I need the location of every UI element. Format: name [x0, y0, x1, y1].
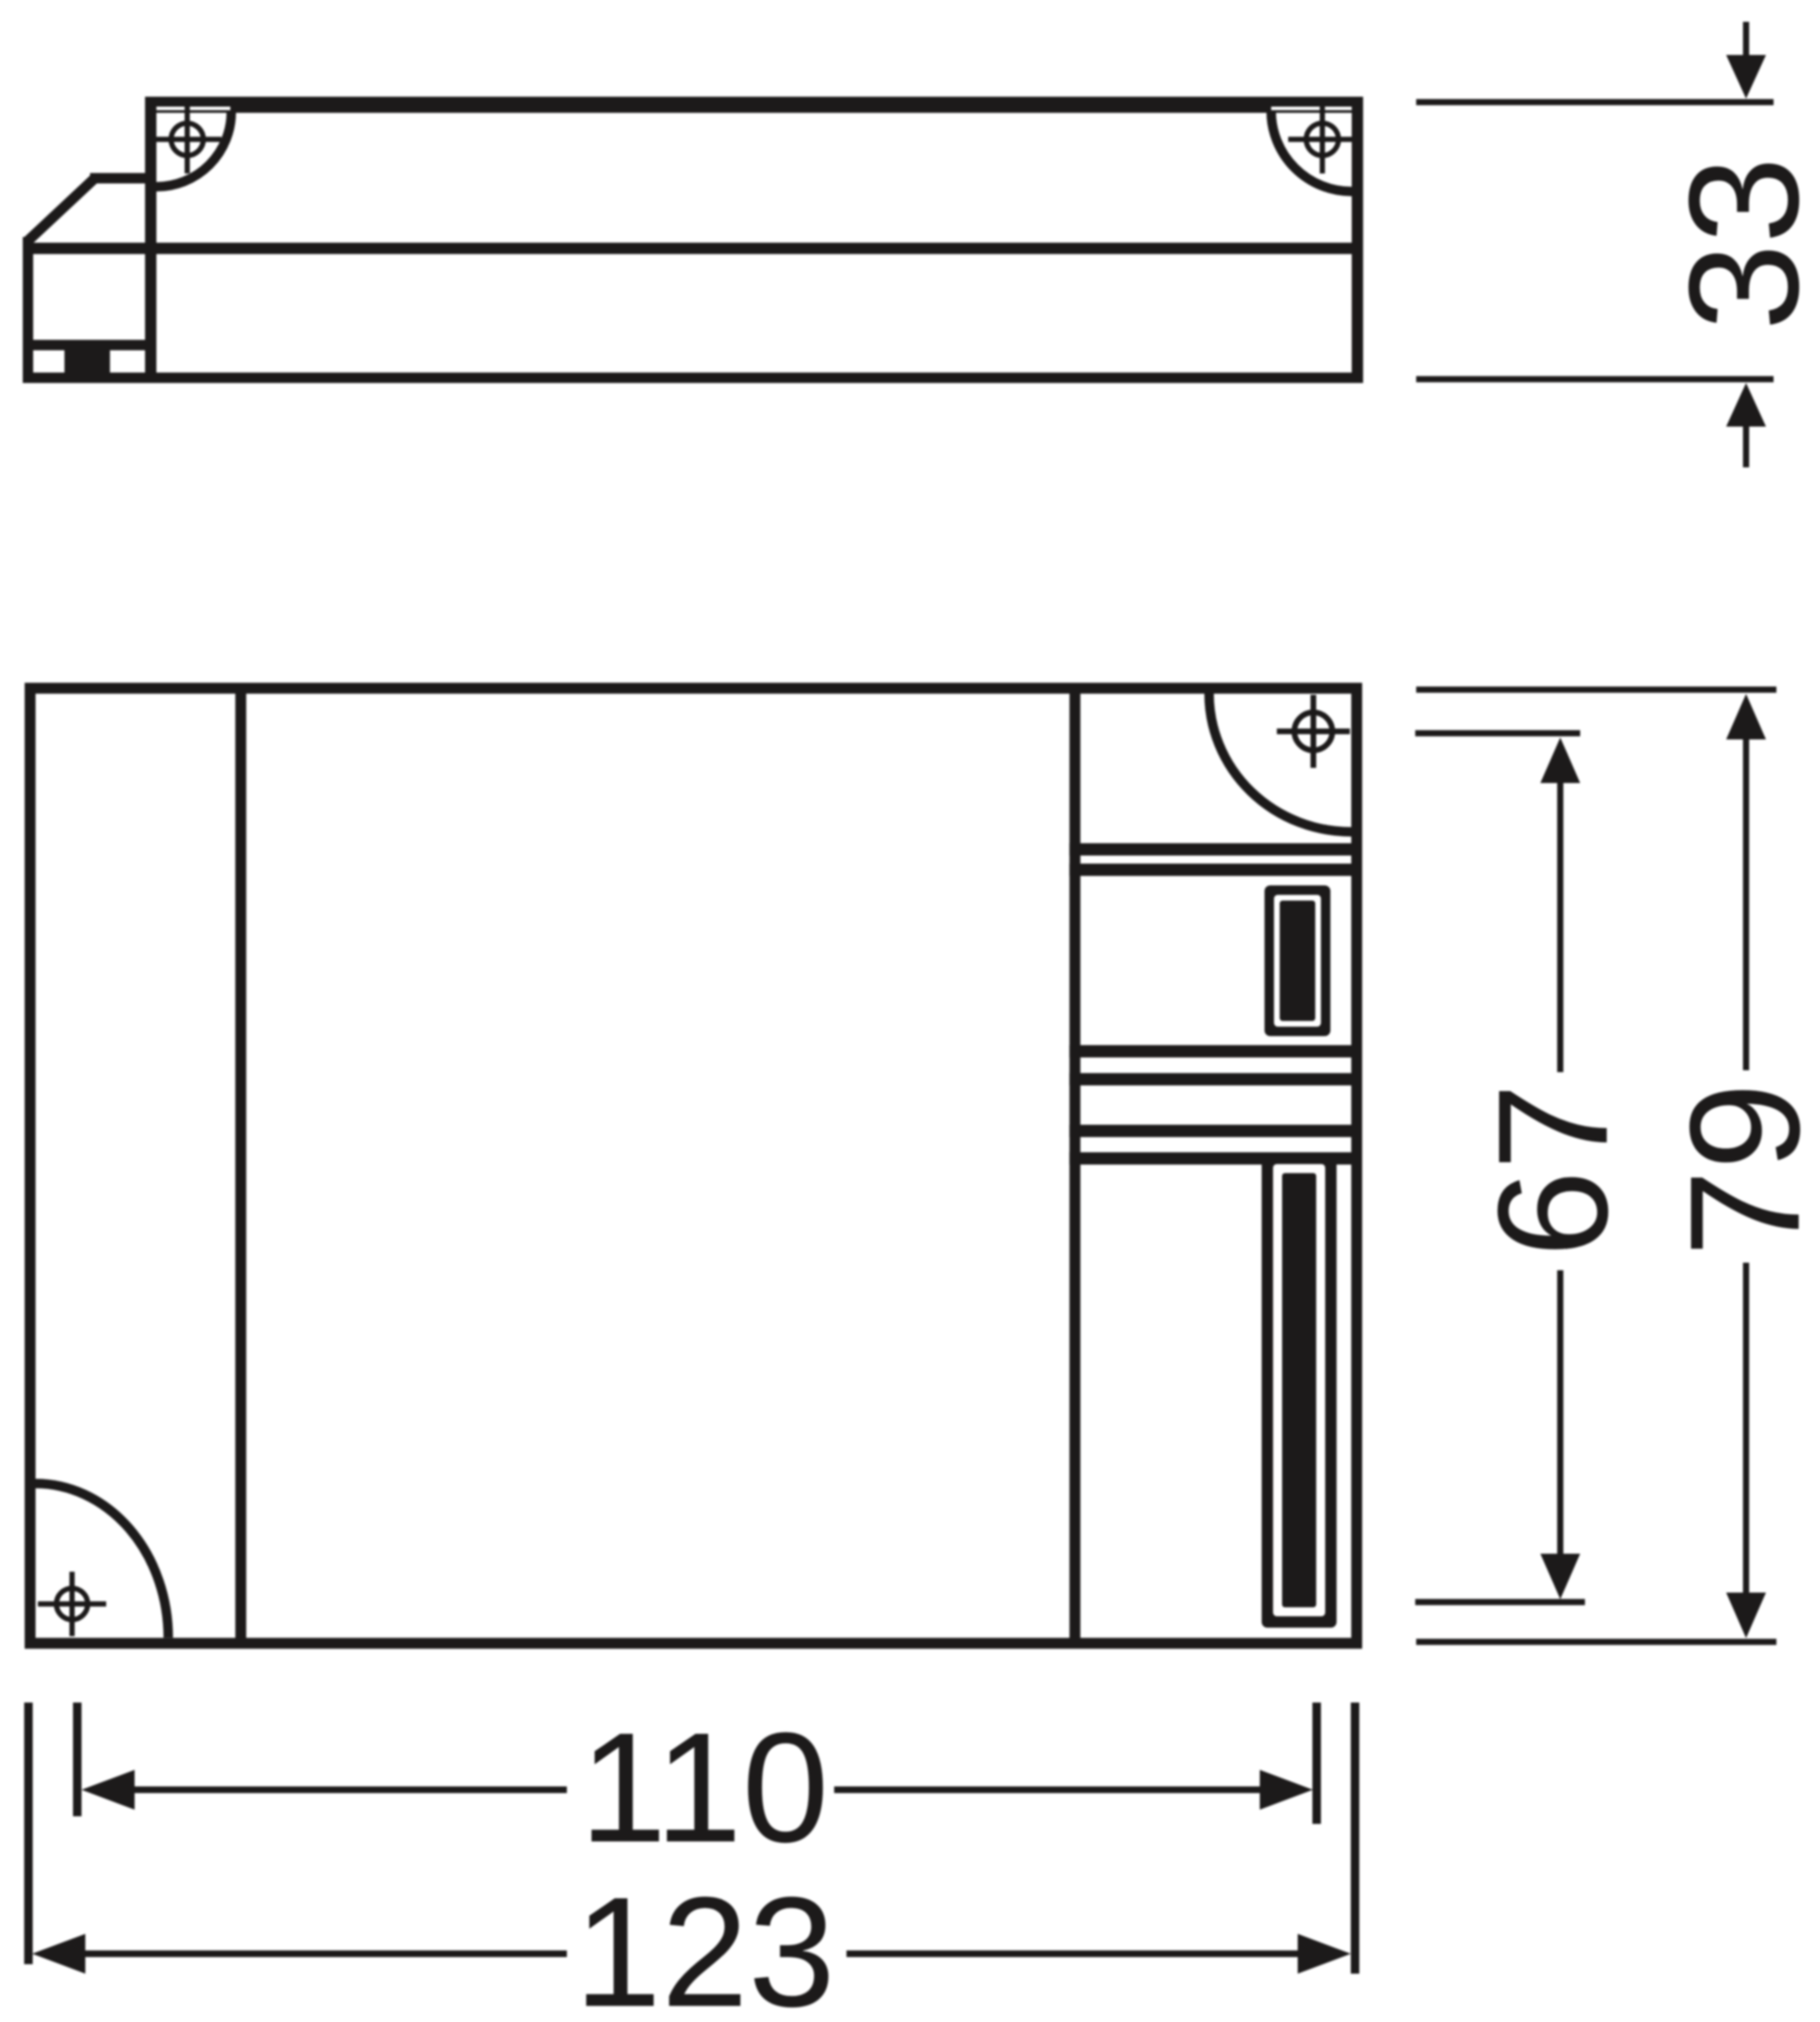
svg-text:123: 123 — [574, 1865, 835, 2022]
svg-text:33: 33 — [1657, 156, 1820, 331]
svg-text:110: 110 — [579, 1701, 828, 1875]
svg-text:79: 79 — [1658, 1083, 1820, 1257]
svg-text:67: 67 — [1465, 1084, 1640, 1258]
